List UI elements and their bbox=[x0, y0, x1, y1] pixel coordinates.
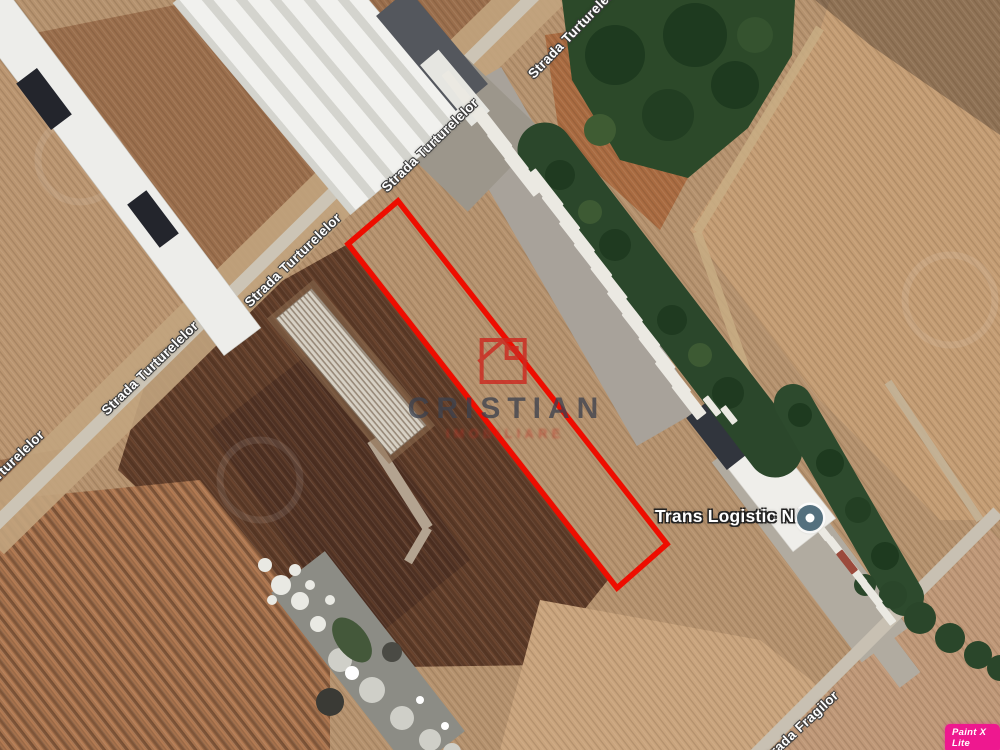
map-canvas[interactable]: Strada Turturelelor Strada Turturelelor … bbox=[0, 0, 1000, 750]
poi-label-trans-logistic-nad[interactable]: Trans Logistic NAD bbox=[655, 506, 820, 527]
paint-x-lite-badge: Paint X Lite bbox=[945, 724, 1000, 750]
poi-marker-icon[interactable] bbox=[797, 505, 823, 531]
poi-marker-dot bbox=[806, 514, 815, 523]
